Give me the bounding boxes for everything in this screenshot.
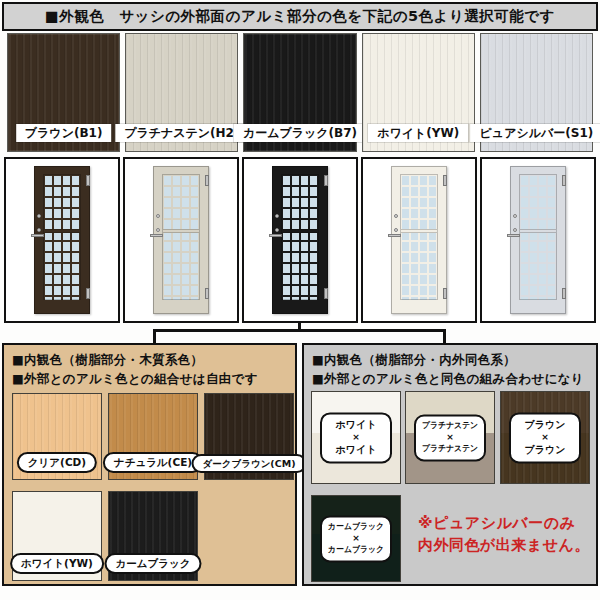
door-handle-icon [269,234,282,237]
door-hinge-icon [443,175,447,186]
pure-silver-note-line1: ※ピュアシルバーのみ [418,513,596,535]
door-handle-icon [31,234,44,237]
door-frame [153,166,209,314]
door-rail [162,229,200,233]
interior-swatch-clear: クリア(CD) [12,393,102,480]
door-handle-icon [388,234,401,237]
door-image-calm-black [242,157,358,323]
color-selection-sheet: ■外観色 サッシの外部面のアルミ部分の色を下記の5色より選択可能です ブラウン(… [0,0,600,600]
exterior-swatch-label: ピュアシルバー(S1) [471,124,600,142]
combo-label: プラチナステン × プラチナステン [414,414,486,461]
door-frame [391,166,447,314]
door-handle-icon [150,234,163,237]
door-preview-row [4,157,596,323]
combo-label: カームブラック × カームブラック [320,515,392,562]
combo-label: ブラウン × ブラウン [509,412,581,463]
exterior-swatch-pure-silver: ピュアシルバー(S1) [480,33,593,152]
interior-wood-color-panel: ■内観色（樹脂部分・木質系色） ■外部とのアルミ色との組合せは自由です クリア(… [2,343,297,586]
door-hinge-icon [324,175,328,186]
interior-swatch-dark-brown: ダークブラウン(CM) [204,393,294,480]
interior-same-color-panel: ■内観色（樹脂部分・内外同色系） ■外部とのアルミ色と同色の組み合わせになります… [302,343,598,586]
door-rail [519,229,557,233]
door-frame [34,166,90,314]
door-glass [281,174,319,300]
exterior-swatch-brown: ブラウン(B1) [7,33,120,152]
door-lock-icon [394,214,398,218]
exterior-color-title: ■外観色 サッシの外部面のアルミ部分の色を下記の5色より選択可能です [2,2,598,31]
door-frame [272,166,328,314]
door-hinge-icon [205,175,209,186]
door-rail [281,229,319,233]
door-rail [43,229,81,233]
pure-silver-note: ※ピュアシルバーのみ 内外同色が出来ません。 [418,513,596,557]
interior-swatch-label: ナチュラル(CE) [103,452,203,473]
interior-wood-heading-line2: ■外部とのアルミ色との組合せは自由です [12,370,287,389]
door-frame [510,166,566,314]
door-image-pure-silver [480,157,596,323]
combo-swatch-brown-brown: ブラウン × ブラウン [500,391,590,484]
pure-silver-note-line2: 内外同色が出来ません。 [418,535,596,557]
door-glass [519,174,557,300]
door-hinge-icon [324,288,328,299]
door-hinge-icon [562,288,566,299]
interior-swatch-label: クリア(CD) [17,452,97,473]
door-hinge-icon [443,288,447,299]
door-lock-icon [275,214,279,218]
exterior-swatch-label: ホワイト(YW) [368,124,468,142]
door-hinge-icon [86,288,90,299]
door-lock-icon [37,214,41,218]
door-lock-icon [156,214,160,218]
interior-wood-heading: ■内観色（樹脂部分・木質系色） ■外部とのアルミ色との組合せは自由です [4,345,295,389]
door-lock-icon [513,228,517,232]
interior-swatch-white: ホワイト(YW) [12,491,102,581]
combo-swatch-calmblack-calmblack: カームブラック × カームブラック [311,495,401,582]
interior-wood-heading-line1: ■内観色（樹脂部分・木質系色） [12,351,287,370]
door-glass [43,174,81,300]
door-image-platinum-stain [123,157,239,323]
interior-swatch-label: ホワイト(YW) [10,553,104,574]
door-hinge-icon [86,175,90,186]
exterior-swatch-platinum-stain: プラチナステン(H2) [125,33,238,152]
exterior-swatch-row: ブラウン(B1) プラチナステン(H2) カームブラック(B7) ホワイト(YW… [7,33,593,152]
exterior-swatch-calm-black: カームブラック(B7) [243,33,356,152]
connector-line [443,329,446,343]
door-lock-icon [156,228,160,232]
interior-swatch-natural: ナチュラル(CE) [108,393,198,480]
connector-line [153,329,446,332]
door-glass [162,174,200,300]
exterior-swatch-white: ホワイト(YW) [362,33,475,152]
connector-line [153,329,156,343]
interior-swatch-label: ダークブラウン(CM) [192,454,307,473]
interior-swatch-label: カームブラック [105,553,202,574]
door-hinge-icon [205,288,209,299]
exterior-color-title-text: ■外観色 サッシの外部面のアルミ部分の色を下記の5色より選択可能です [45,7,555,26]
door-lock-icon [37,228,41,232]
door-glass [400,174,438,300]
door-lock-icon [394,228,398,232]
combo-swatch-platinum-platinum: プラチナステン × プラチナステン [405,391,495,484]
door-image-white [361,157,477,323]
combo-swatch-white-white: ホワイト × ホワイト [311,391,401,484]
interior-same-heading-line1: ■内観色（樹脂部分・内外同色系） [312,351,588,370]
door-hinge-icon [562,175,566,186]
combo-label: ホワイト × ホワイト [320,412,392,463]
door-lock-icon [513,214,517,218]
door-rail [400,229,438,233]
door-lock-icon [275,228,279,232]
exterior-swatch-label: カームブラック(B7) [234,124,366,142]
door-image-brown [4,157,120,323]
interior-swatch-calm-black: カームブラック [108,491,198,581]
exterior-swatch-label: ブラウン(B1) [16,124,112,142]
exterior-swatch-label: プラチナステン(H2) [115,124,248,142]
door-handle-icon [507,234,520,237]
